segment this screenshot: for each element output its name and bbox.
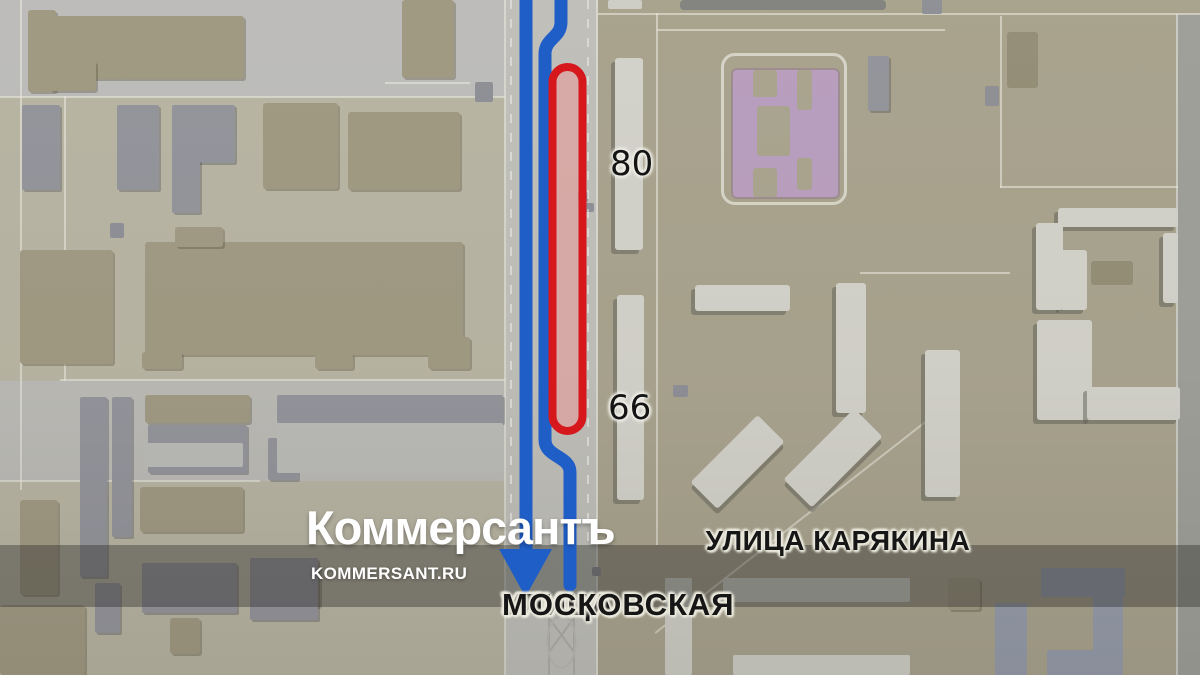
house-number-80: 80 — [610, 144, 653, 184]
street-label-karyakina: УЛИЦА КАРЯКИНА — [706, 525, 971, 557]
house-number-66: 66 — [608, 388, 651, 428]
map-image: 80 66 УЛИЦА КАРЯКИНА УЛИЦА МОСКОВСКАЯ Ко… — [0, 0, 1200, 675]
closed-segment — [553, 67, 583, 431]
street-label-moskovskaya-line2: МОСКОВСКАЯ — [502, 588, 735, 622]
kommersant-site-url: KOMMERSANT.RU — [311, 564, 467, 584]
kommersant-logo: Коммерсантъ — [306, 500, 615, 555]
route-overlay — [0, 0, 1200, 675]
